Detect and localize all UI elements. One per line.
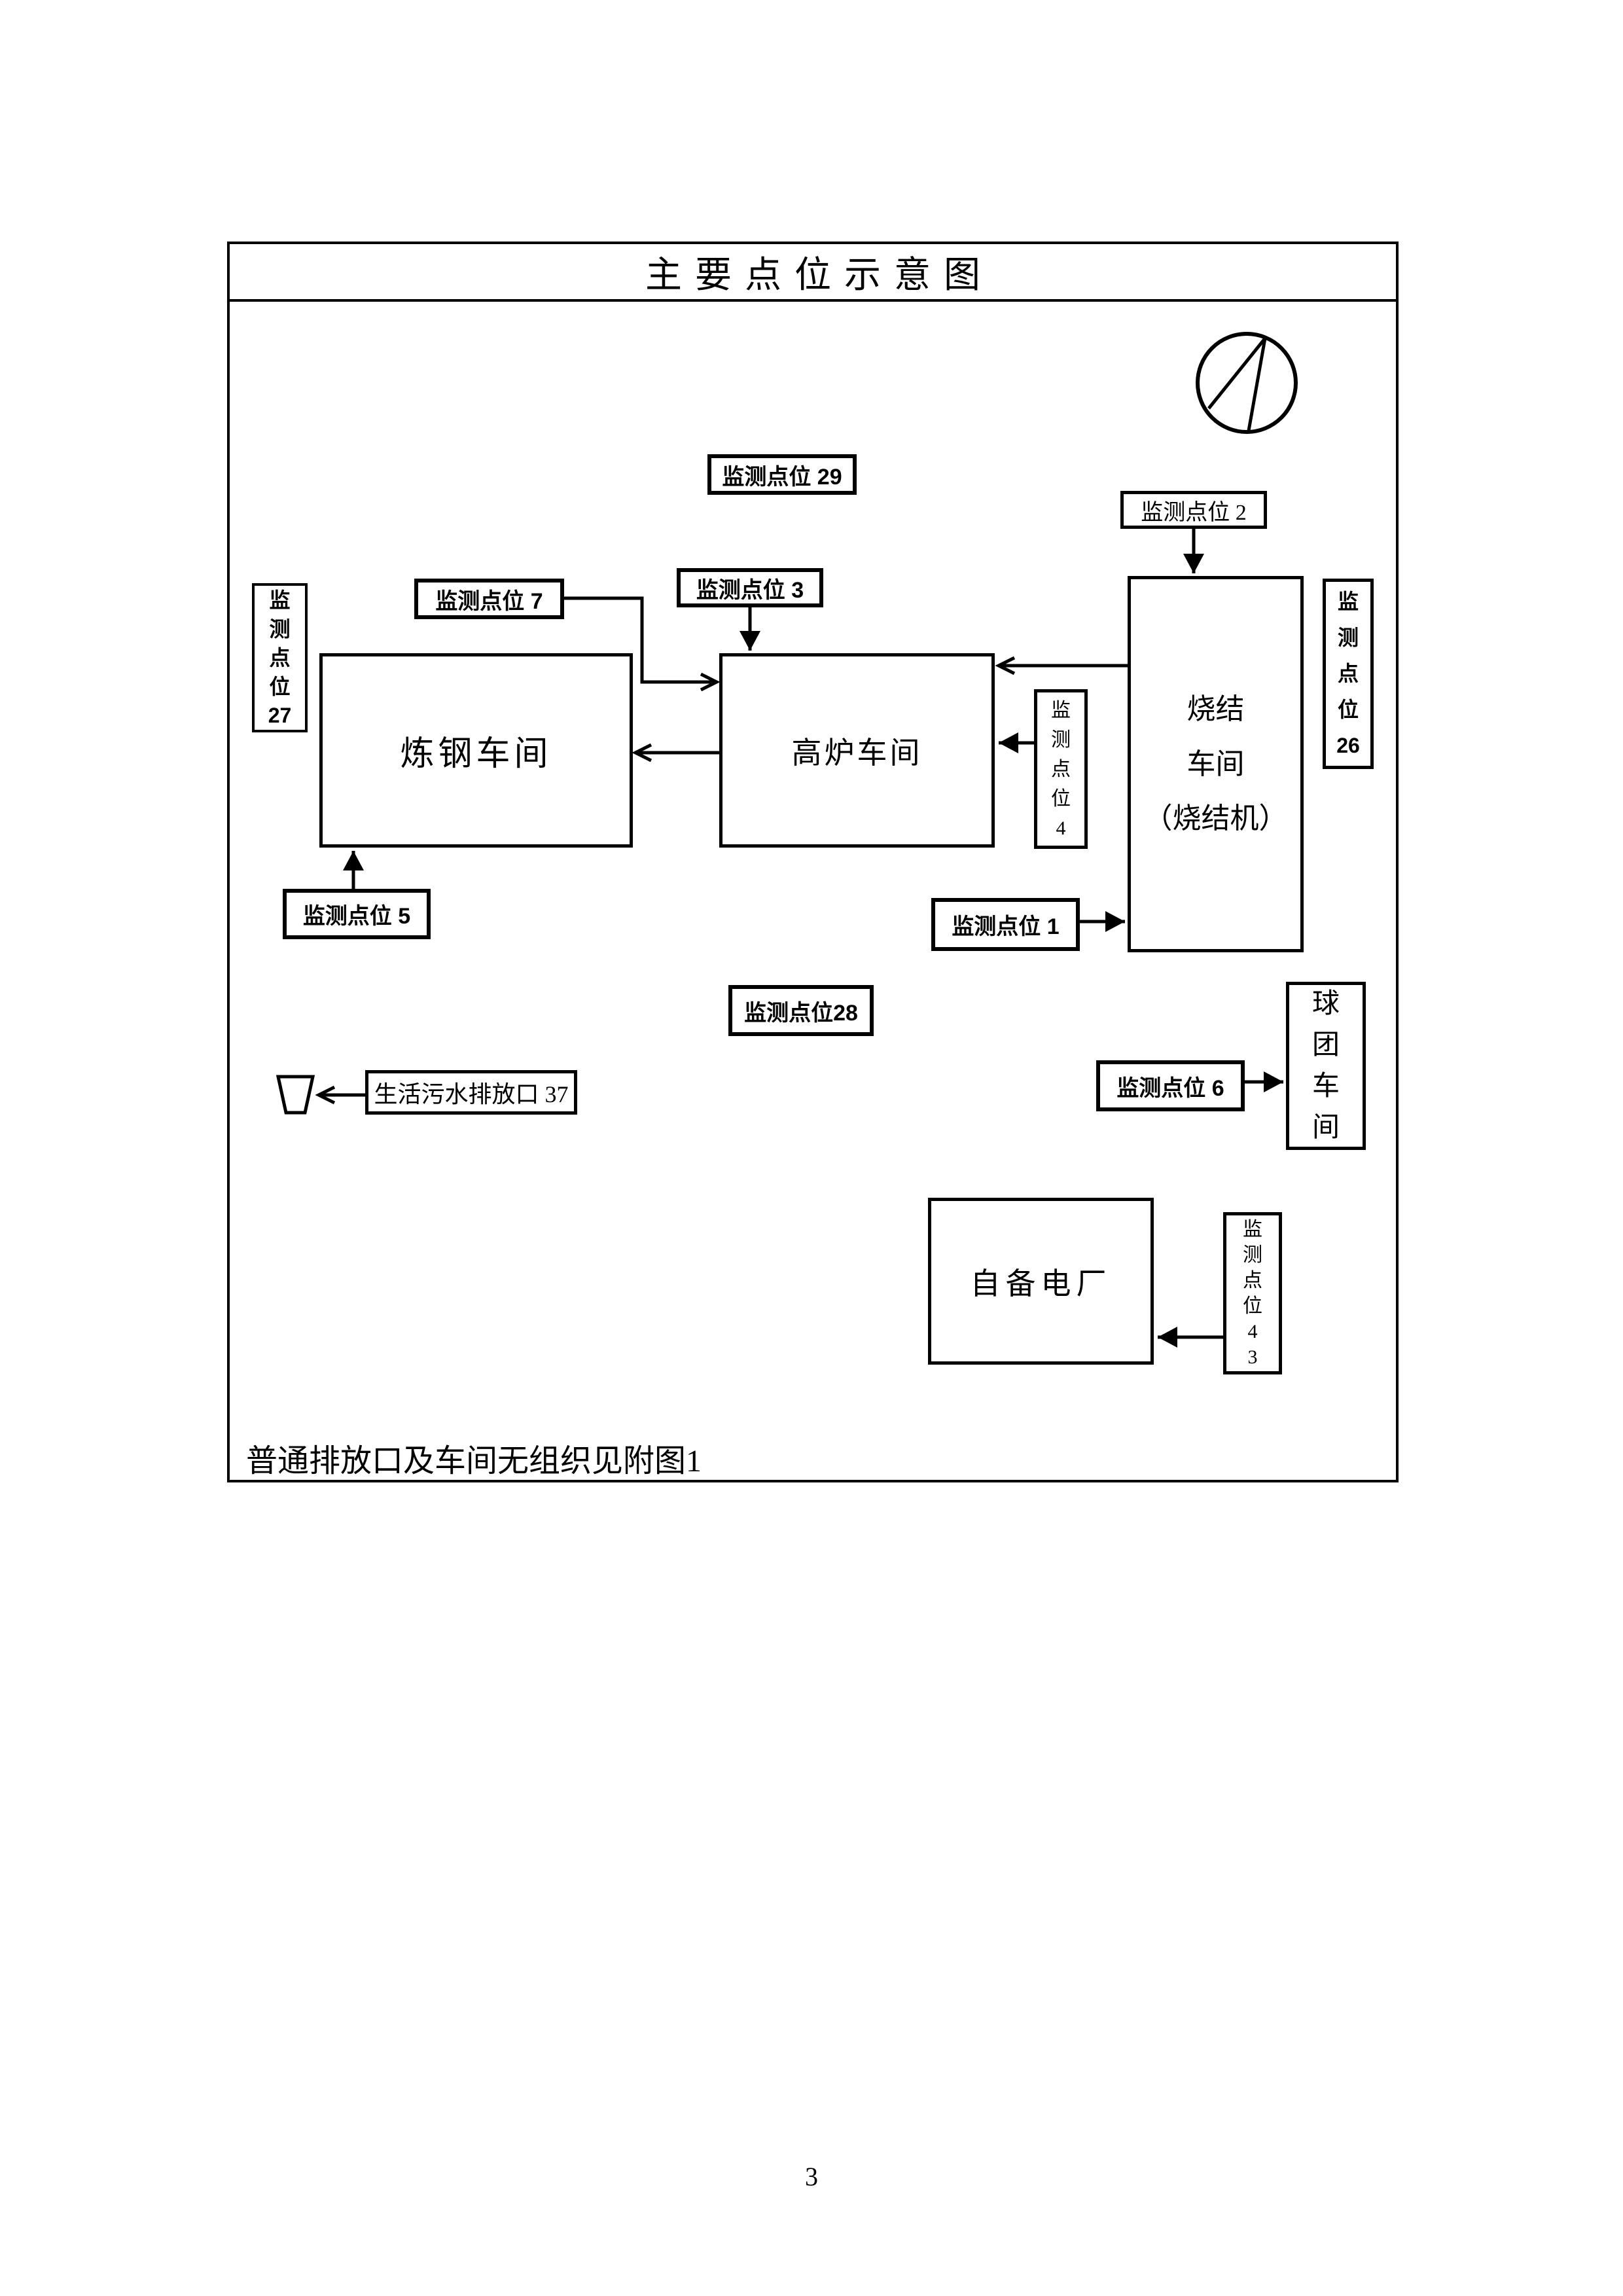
monitoring-point-2-label: 监测点位 2 (1120, 491, 1267, 529)
workshop-pellet: 球 团 车 间 (1286, 982, 1366, 1150)
monitoring-point-7-label: 监测点位 7 (414, 579, 564, 619)
monitoring-point-1-label: 监测点位 1 (931, 898, 1080, 951)
page-number: 3 (0, 2161, 1623, 2192)
workshop-power-plant: 自备电厂 (928, 1198, 1154, 1365)
workshop-blast-furnace: 高炉车间 (719, 653, 995, 848)
footnote: 普通排放口及车间无组织见附图1 (246, 1435, 1162, 1480)
monitoring-point-26-label: 监 测 点 位 26 (1323, 579, 1374, 769)
monitoring-point-3-label: 监测点位 3 (677, 568, 823, 607)
monitoring-point-5-label: 监测点位 5 (283, 889, 431, 939)
sewage-outlet-37-label: 生活污水排放口 37 (365, 1070, 577, 1115)
diagram-title-bar: 主要点位示意图 (227, 242, 1399, 302)
monitoring-point-28-label: 监测点位28 (728, 985, 874, 1036)
workshop-steelmaking: 炼钢车间 (319, 653, 633, 848)
document-page: 主要点位示意图 炼钢车间 高 (0, 0, 1623, 2296)
monitoring-point-29-label: 监测点位 29 (707, 454, 857, 495)
monitoring-point-27-label: 监 测 点 位 27 (252, 583, 308, 732)
diagram-title: 主要点位示意图 (632, 245, 993, 298)
monitoring-point-43-label: 监 测 点 位 4 3 (1223, 1212, 1282, 1374)
monitoring-point-4-label: 监 测 点 位 4 (1034, 689, 1088, 849)
monitoring-point-6-label: 监测点位 6 (1096, 1060, 1245, 1111)
workshop-sintering: 烧结 车间 （烧结机） (1128, 576, 1304, 952)
